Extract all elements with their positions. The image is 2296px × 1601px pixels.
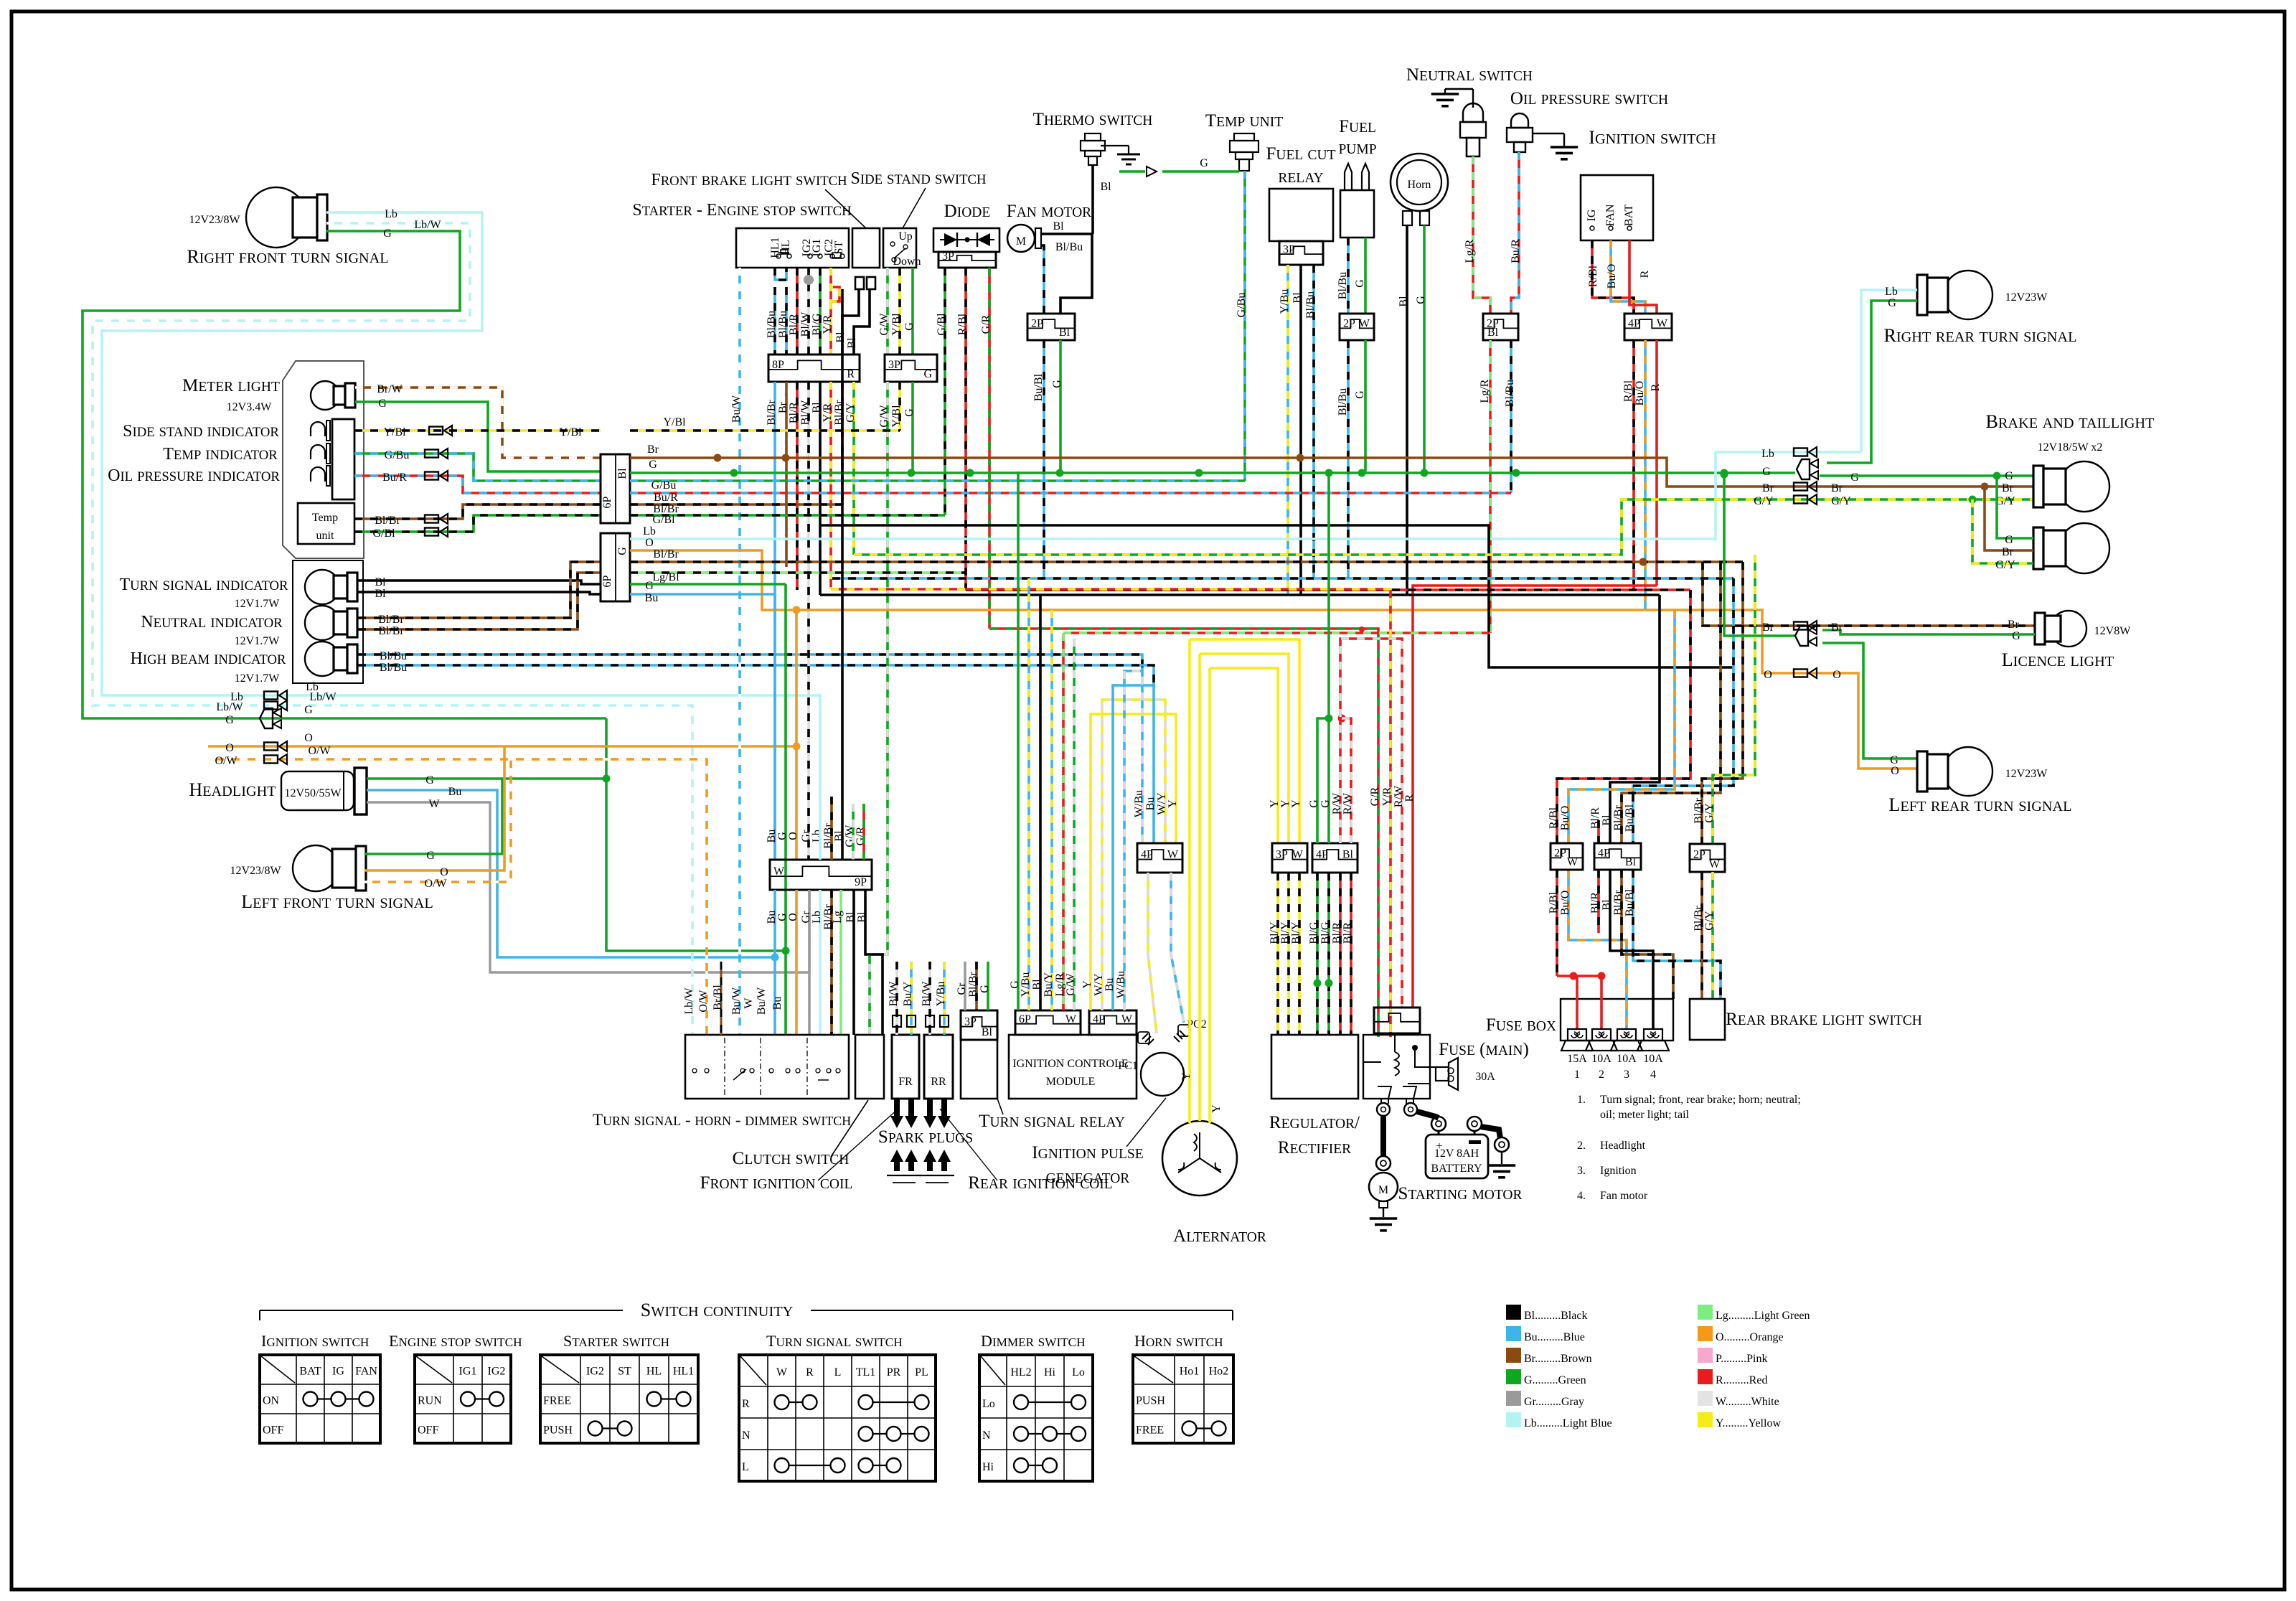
- svg-text:Temp: Temp: [312, 512, 338, 524]
- svg-text:12V8W: 12V8W: [2094, 625, 2132, 637]
- svg-text:3P: 3P: [942, 250, 954, 263]
- svg-text:PUSH: PUSH: [543, 1424, 573, 1437]
- svg-text:Lb/W: Lb/W: [683, 987, 695, 1014]
- svg-text:Down: Down: [893, 255, 921, 268]
- svg-text:Bu/O: Bu/O: [1559, 891, 1571, 916]
- svg-text:OIL PRESSURE SWITCH: OIL PRESSURE SWITCH: [1510, 89, 1668, 108]
- svg-text:2P: 2P: [1343, 318, 1355, 330]
- svg-text:M: M: [1016, 235, 1026, 248]
- svg-text:12V 8AH: 12V 8AH: [1434, 1147, 1479, 1160]
- svg-text:Bl: Bl: [1601, 814, 1613, 826]
- svg-text:1: 1: [1574, 1069, 1580, 1081]
- svg-text:Lg/Bl: Lg/Bl: [652, 571, 679, 583]
- svg-text:Bu/Bl: Bu/Bl: [1032, 373, 1045, 401]
- svg-text:Y/R: Y/R: [822, 314, 834, 334]
- svg-text:THERMO SWITCH: THERMO SWITCH: [1033, 110, 1153, 129]
- svg-text:SIDE STAND INDICATOR: SIDE STAND INDICATOR: [123, 422, 279, 441]
- svg-text:8P: 8P: [772, 359, 784, 371]
- svg-text:REGULATOR/: REGULATOR/: [1269, 1113, 1360, 1132]
- svg-text:METER LIGHT: METER LIGHT: [182, 376, 280, 395]
- svg-text:G: G: [1762, 466, 1771, 478]
- svg-text:W: W: [1121, 1013, 1133, 1025]
- svg-text:10A: 10A: [1617, 1053, 1637, 1065]
- svg-text:FUEL: FUEL: [1339, 117, 1376, 136]
- svg-text:12V1.7W: 12V1.7W: [235, 672, 281, 685]
- svg-text:IG2: IG2: [586, 1366, 604, 1378]
- svg-text:G: G: [1354, 390, 1366, 399]
- svg-text:IG1: IG1: [811, 239, 823, 257]
- svg-text:Bl/Br: Bl/Br: [1612, 805, 1624, 831]
- svg-text:Headlight: Headlight: [1600, 1140, 1646, 1152]
- svg-text:FUEL CUT: FUEL CUT: [1266, 144, 1335, 164]
- svg-text:RR: RR: [931, 1076, 946, 1088]
- svg-text:Bl/R: Bl/R: [788, 314, 800, 336]
- svg-text:IG: IG: [1586, 209, 1598, 221]
- svg-text:Br: Br: [1831, 482, 1843, 494]
- svg-text:Lg/R: Lg/R: [1464, 239, 1476, 263]
- svg-text:Y.........Yellow: Y.........Yellow: [1716, 1417, 1781, 1429]
- svg-text:Br: Br: [2008, 619, 2020, 631]
- svg-text:R: R: [742, 1398, 750, 1410]
- svg-text:R: R: [847, 368, 855, 380]
- svg-text:R/Bl: R/Bl: [1622, 380, 1634, 402]
- svg-text:HL: HL: [646, 1366, 662, 1378]
- svg-text:Y: Y: [1210, 1104, 1223, 1113]
- svg-text:W: W: [1657, 318, 1668, 330]
- svg-text:Y: Y: [1290, 799, 1302, 808]
- svg-text:Bl/Br: Bl/Br: [375, 515, 400, 527]
- svg-text:PR: PR: [887, 1366, 901, 1379]
- svg-text:SIDE STAND SWITCH: SIDE STAND SWITCH: [851, 169, 987, 188]
- svg-text:R: R: [1403, 794, 1416, 802]
- svg-text:IG2: IG2: [488, 1366, 506, 1378]
- svg-text:O/W: O/W: [215, 755, 237, 767]
- svg-text:Y/R: Y/R: [822, 403, 834, 422]
- svg-text:RECTIFIER: RECTIFIER: [1278, 1138, 1351, 1158]
- svg-text:G: G: [2005, 470, 2013, 482]
- svg-text:Br/Bl: Br/Bl: [712, 985, 724, 1010]
- svg-text:Br/W: Br/W: [377, 383, 403, 395]
- svg-text:P.........Pink: P.........Pink: [1716, 1353, 1767, 1365]
- svg-text:IG: IG: [332, 1366, 344, 1378]
- svg-text:Bl/Bu: Bl/Bu: [1337, 272, 1349, 299]
- svg-text:FRONT BRAKE LIGHT SWITCH: FRONT BRAKE LIGHT SWITCH: [651, 171, 847, 189]
- svg-text:G: G: [378, 398, 387, 410]
- svg-text:O.........Orange: O.........Orange: [1716, 1331, 1784, 1343]
- svg-text:Bl/R: Bl/R: [788, 402, 800, 424]
- svg-text:Br: Br: [2002, 482, 2014, 494]
- svg-text:ST: ST: [618, 1366, 631, 1378]
- svg-text:Y/Bl: Y/Bl: [890, 405, 903, 428]
- svg-text:Lb.........Light Blue: Lb.........Light Blue: [1524, 1417, 1612, 1429]
- svg-text:TURN SIGNAL - HORN - DIMMER SW: TURN SIGNAL - HORN - DIMMER SWITCH: [593, 1111, 851, 1129]
- svg-text:Bl: Bl: [1053, 220, 1064, 233]
- svg-text:Bl: Bl: [375, 576, 386, 588]
- svg-text:G/Y: G/Y: [1995, 495, 2015, 507]
- svg-text:SPARK PLUGS: SPARK PLUGS: [878, 1127, 973, 1147]
- svg-text:R.........Red: R.........Red: [1716, 1374, 1767, 1386]
- svg-text:Bu/Bl: Bu/Bl: [1624, 888, 1636, 916]
- svg-text:Lb: Lb: [643, 525, 656, 537]
- svg-text:TURN SIGNAL RELAY: TURN SIGNAL RELAY: [979, 1112, 1125, 1131]
- svg-text:Bl/Br: Bl/Br: [378, 625, 404, 637]
- svg-text:4P: 4P: [1316, 849, 1328, 861]
- svg-text:Bl: Bl: [1398, 296, 1410, 307]
- svg-text:G: G: [1319, 799, 1332, 808]
- svg-text:Bl/W: Bl/W: [799, 311, 811, 337]
- svg-text:W/Bu: W/Bu: [1133, 790, 1145, 817]
- svg-text:G: G: [1850, 471, 1859, 484]
- svg-text:N: N: [982, 1429, 991, 1442]
- svg-text:Bl: Bl: [1625, 856, 1637, 868]
- svg-text:Y/Bl: Y/Bl: [559, 426, 582, 438]
- svg-text:Up: Up: [898, 230, 913, 243]
- svg-text:Bu.........Blue: Bu.........Blue: [1524, 1331, 1585, 1343]
- svg-text:3P: 3P: [1276, 849, 1288, 861]
- svg-text:12V1.7W: 12V1.7W: [235, 635, 281, 647]
- svg-text:Bu/W: Bu/W: [730, 987, 743, 1015]
- svg-text:R: R: [1639, 270, 1651, 278]
- svg-text:2: 2: [1599, 1069, 1604, 1081]
- svg-text:L: L: [742, 1461, 749, 1473]
- svg-text:12V23/8W: 12V23/8W: [189, 214, 240, 226]
- svg-text:Bu: Bu: [448, 786, 462, 798]
- svg-text:12V23/8W: 12V23/8W: [230, 865, 281, 877]
- svg-text:Bl/Br: Bl/Br: [1612, 890, 1624, 916]
- svg-text:R/Bl: R/Bl: [1548, 891, 1560, 914]
- svg-text:oil; meter light; tail: oil; meter light; tail: [1600, 1109, 1690, 1121]
- svg-text:G: G: [1888, 297, 1896, 309]
- svg-text:W.........White: W.........White: [1716, 1396, 1779, 1408]
- svg-text:Bl/Br: Bl/Br: [967, 972, 979, 997]
- svg-text:3P: 3P: [1283, 244, 1295, 256]
- svg-text:MODULE: MODULE: [1046, 1076, 1095, 1088]
- svg-text:G: G: [425, 774, 434, 787]
- svg-text:O: O: [440, 866, 448, 878]
- svg-text:G/Bu: G/Bu: [385, 449, 410, 461]
- svg-text:HL1: HL1: [673, 1366, 694, 1378]
- svg-text:W: W: [1567, 856, 1578, 868]
- svg-text:FUSE BOX: FUSE BOX: [1486, 1015, 1556, 1035]
- svg-text:CLUTCH SWITCH: CLUTCH SWITCH: [733, 1149, 850, 1168]
- svg-text:Lg/R: Lg/R: [1479, 379, 1491, 403]
- svg-text:Bl/Bu: Bl/Bu: [380, 650, 407, 662]
- svg-text:Y/Bl: Y/Bl: [663, 416, 686, 428]
- svg-text:PUMP: PUMP: [1338, 142, 1376, 157]
- svg-text:O: O: [1891, 765, 1899, 777]
- svg-text:3P: 3P: [888, 359, 900, 371]
- svg-text:Bl/Br: Bl/Br: [653, 548, 679, 560]
- svg-text:G: G: [304, 704, 313, 716]
- svg-text:Bl: Bl: [834, 332, 847, 343]
- svg-text:O/W: O/W: [308, 745, 331, 757]
- svg-text:Lg.........Light Green: Lg.........Light Green: [1716, 1310, 1810, 1322]
- svg-text:G.........Green: G.........Green: [1524, 1374, 1586, 1386]
- svg-text:STARTER - ENGINE STOP SWITCH: STARTER - ENGINE STOP SWITCH: [632, 201, 851, 220]
- svg-text:Bl/Br: Bl/Br: [766, 400, 778, 426]
- svg-text:W: W: [428, 798, 440, 810]
- svg-text:G/Y: G/Y: [1831, 495, 1851, 507]
- svg-text:R/Bl: R/Bl: [956, 313, 969, 335]
- svg-text:RELAY: RELAY: [1278, 171, 1323, 186]
- svg-text:Ho1: Ho1: [1180, 1366, 1200, 1378]
- svg-text:Horn: Horn: [1408, 179, 1431, 191]
- svg-text:G/Y: G/Y: [1995, 559, 2015, 571]
- svg-text:Bu: Bu: [1144, 797, 1157, 811]
- svg-text:G/W: G/W: [878, 405, 890, 428]
- svg-text:G: G: [1308, 799, 1320, 808]
- svg-text:Lb: Lb: [811, 911, 823, 924]
- svg-text:FAN: FAN: [355, 1366, 377, 1378]
- svg-text:Bu/Bl: Bu/Bl: [1624, 804, 1636, 832]
- svg-text:PUSH: PUSH: [1136, 1395, 1165, 1407]
- svg-text:10A: 10A: [1591, 1053, 1612, 1065]
- svg-text:G: G: [1354, 279, 1366, 288]
- svg-text:R: R: [1650, 383, 1662, 391]
- svg-text:FREE: FREE: [543, 1395, 571, 1407]
- svg-text:12V3.4W: 12V3.4W: [227, 401, 273, 413]
- svg-text:G/Y: G/Y: [1703, 803, 1716, 823]
- svg-text:Bl/Y: Bl/Y: [1290, 921, 1302, 944]
- svg-text:Bu/R: Bu/R: [654, 492, 678, 504]
- svg-text:2.: 2.: [1577, 1140, 1586, 1152]
- svg-text:FAN MOTOR: FAN MOTOR: [1007, 202, 1091, 221]
- svg-text:2P: 2P: [1693, 849, 1705, 861]
- svg-text:W: W: [1065, 1013, 1077, 1025]
- svg-text:Y/Bl: Y/Bl: [890, 313, 903, 336]
- svg-text:Lg: Lg: [832, 911, 844, 924]
- svg-text:G/Y: G/Y: [1703, 911, 1716, 931]
- svg-text:Gr: Gr: [956, 982, 968, 995]
- svg-text:W: W: [743, 997, 755, 1009]
- svg-text:Bl: Bl: [1100, 181, 1111, 193]
- svg-text:G: G: [426, 850, 435, 862]
- svg-text:Hi: Hi: [982, 1461, 994, 1473]
- svg-text:Bl/G: Bl/G: [1319, 921, 1332, 944]
- svg-text:4.: 4.: [1577, 1190, 1586, 1202]
- svg-text:Bl: Bl: [616, 468, 629, 479]
- svg-text:Gr.........Gray: Gr.........Gray: [1524, 1396, 1584, 1408]
- svg-text:Bl/Bu: Bl/Bu: [1337, 388, 1349, 415]
- svg-text:Bl: Bl: [1031, 979, 1043, 990]
- svg-text:G/R: G/R: [1369, 787, 1381, 806]
- svg-text:Hi: Hi: [1044, 1366, 1056, 1379]
- svg-text:RUN: RUN: [418, 1395, 442, 1407]
- svg-text:Br: Br: [1762, 482, 1774, 494]
- svg-text:Y: Y: [1180, 1072, 1192, 1081]
- svg-text:Bl: Bl: [1291, 292, 1304, 304]
- svg-text:Bu: Bu: [645, 592, 659, 604]
- svg-text:O: O: [225, 742, 234, 754]
- svg-text:O/W: O/W: [697, 990, 710, 1013]
- svg-text:Bl: Bl: [1487, 327, 1499, 339]
- svg-text:G: G: [903, 322, 916, 331]
- svg-text:W: W: [1359, 318, 1370, 330]
- svg-text:Bl: Bl: [1342, 849, 1354, 861]
- svg-text:Br: Br: [1831, 621, 1843, 634]
- svg-text:W: W: [773, 865, 785, 878]
- svg-text:G: G: [383, 227, 392, 240]
- svg-text:W/Bu: W/Bu: [1115, 971, 1127, 998]
- svg-text:15A: 15A: [1567, 1053, 1587, 1065]
- svg-text:Bl/Bu: Bl/Bu: [1504, 380, 1516, 407]
- svg-text:Bl/Bu: Bl/Bu: [1055, 241, 1083, 253]
- svg-text:FR: FR: [898, 1076, 913, 1088]
- svg-text:OFF: OFF: [418, 1424, 438, 1437]
- svg-text:R/Bl: R/Bl: [1587, 265, 1599, 287]
- svg-text:G/Y: G/Y: [1754, 495, 1774, 507]
- svg-text:G/Bl: G/Bl: [372, 527, 395, 540]
- svg-text:4P: 4P: [1628, 318, 1640, 330]
- svg-text:G: G: [923, 368, 932, 380]
- svg-text:12V50/55W: 12V50/55W: [284, 787, 342, 799]
- svg-text:G: G: [645, 580, 654, 592]
- svg-text:Y/Bu: Y/Bu: [1020, 972, 1032, 997]
- svg-text:4P: 4P: [1598, 848, 1610, 860]
- svg-text:Lb: Lb: [1761, 448, 1774, 460]
- svg-text:6P: 6P: [1019, 1013, 1031, 1025]
- svg-text:Bu/O: Bu/O: [1634, 381, 1646, 406]
- svg-text:O: O: [1832, 669, 1841, 681]
- svg-text:DIODE: DIODE: [944, 202, 991, 221]
- svg-text:Y/Bu: Y/Bu: [935, 982, 947, 1007]
- svg-text:Bu/O: Bu/O: [1606, 264, 1618, 289]
- svg-text:HL2: HL2: [1010, 1366, 1031, 1379]
- svg-text:Br: Br: [647, 443, 659, 456]
- svg-text:Bl/W: Bl/W: [888, 981, 900, 1007]
- svg-text:TL1: TL1: [856, 1366, 876, 1379]
- svg-text:Turn signal; front, rear brake: Turn signal; front, rear brake; horn; ne…: [1600, 1094, 1801, 1106]
- svg-text:ON: ON: [263, 1395, 280, 1407]
- svg-text:PL: PL: [915, 1366, 928, 1379]
- svg-text:9P: 9P: [855, 876, 867, 888]
- svg-text:2P: 2P: [1554, 848, 1566, 860]
- svg-text:Lb/W: Lb/W: [216, 701, 243, 713]
- svg-text:GENEGATOR: GENEGATOR: [1046, 1171, 1130, 1186]
- svg-text:Bu/Y: Bu/Y: [902, 981, 914, 1006]
- svg-text:G/Bu: G/Bu: [651, 479, 677, 492]
- svg-text:O: O: [304, 732, 313, 744]
- svg-text:4: 4: [1650, 1069, 1656, 1081]
- svg-text:W: W: [1709, 858, 1721, 870]
- svg-text:OIL PRESSURE INDICATOR: OIL PRESSURE INDICATOR: [108, 466, 280, 485]
- svg-text:2P: 2P: [1031, 318, 1043, 330]
- svg-text:Bu/R: Bu/R: [382, 471, 407, 484]
- svg-text:G/Bl: G/Bl: [936, 313, 948, 336]
- svg-text:O: O: [645, 537, 654, 549]
- svg-text:PC1: PC1: [1118, 1060, 1138, 1072]
- svg-text:R/Bl: R/Bl: [1548, 807, 1560, 829]
- svg-text:G: G: [1051, 380, 1063, 388]
- svg-text:G: G: [1200, 157, 1208, 169]
- svg-text:IG1: IG1: [459, 1366, 477, 1378]
- svg-text:30A: 30A: [1475, 1071, 1495, 1083]
- svg-text:FREE: FREE: [1136, 1424, 1164, 1437]
- svg-text:Bl/G: Bl/G: [1308, 921, 1320, 944]
- svg-text:Bl/W: Bl/W: [799, 400, 811, 426]
- svg-text:Bu/R: Bu/R: [1510, 239, 1522, 263]
- svg-text:FRONT IGNITION COIL: FRONT IGNITION COIL: [700, 1173, 853, 1193]
- svg-text:Br: Br: [2002, 546, 2014, 558]
- svg-text:N: N: [742, 1429, 751, 1442]
- svg-text:10A: 10A: [1643, 1053, 1663, 1065]
- svg-text:Bu: Bu: [771, 997, 784, 1010]
- svg-text:G: G: [225, 714, 234, 726]
- svg-text:STARTING MOTOR: STARTING MOTOR: [1398, 1184, 1522, 1203]
- svg-text:unit: unit: [316, 530, 334, 542]
- svg-text:Bu/W: Bu/W: [756, 987, 768, 1015]
- svg-text:L: L: [834, 1366, 842, 1379]
- svg-text:Y/Bu: Y/Bu: [1279, 289, 1291, 314]
- svg-text:G: G: [903, 408, 916, 417]
- svg-text:Y: Y: [1081, 980, 1093, 989]
- svg-text:Bl: Bl: [846, 337, 858, 349]
- svg-text:3P: 3P: [964, 1016, 977, 1028]
- svg-text:TURN SIGNAL INDICATOR: TURN SIGNAL INDICATOR: [119, 576, 288, 594]
- svg-text:TEMP UNIT: TEMP UNIT: [1205, 111, 1283, 131]
- svg-text:4P: 4P: [1093, 1013, 1105, 1025]
- svg-text:W: W: [1292, 849, 1304, 861]
- svg-text:6P: 6P: [601, 496, 613, 508]
- svg-text:O/W: O/W: [424, 878, 447, 890]
- svg-text:G/W: G/W: [1065, 973, 1077, 996]
- svg-text:Bl.........Black: Bl.........Black: [1524, 1310, 1587, 1322]
- svg-text:12V18/5W x2: 12V18/5W x2: [2038, 441, 2103, 454]
- svg-text:Bl: Bl: [856, 911, 868, 923]
- svg-text:G: G: [616, 547, 629, 555]
- svg-text:Bl/R: Bl/R: [1342, 922, 1354, 944]
- svg-text:Bl: Bl: [1601, 899, 1613, 911]
- svg-text:FAN: FAN: [1604, 204, 1617, 226]
- svg-text:O: O: [787, 913, 799, 921]
- svg-text:G/Bl: G/Bl: [652, 514, 675, 526]
- svg-text:G: G: [1415, 296, 1427, 304]
- svg-text:R: R: [806, 1366, 814, 1379]
- svg-text:NEUTRAL INDICATOR: NEUTRAL INDICATOR: [141, 613, 283, 632]
- svg-text:Bl/Bu: Bl/Bu: [1304, 291, 1317, 319]
- svg-text:3: 3: [1624, 1069, 1629, 1081]
- svg-text:12V23W: 12V23W: [2005, 768, 2048, 780]
- svg-text:12V1.7W: 12V1.7W: [235, 598, 281, 610]
- svg-text:Bl: Bl: [375, 588, 386, 600]
- svg-text:Bl: Bl: [844, 911, 857, 923]
- svg-text:W: W: [776, 1366, 788, 1379]
- svg-text:Y/Bl: Y/Bl: [383, 426, 406, 438]
- svg-text:G/W: G/W: [878, 313, 890, 336]
- svg-text:G: G: [2012, 630, 2020, 642]
- svg-text:Lo: Lo: [982, 1398, 995, 1410]
- svg-text:3.: 3.: [1577, 1165, 1586, 1177]
- svg-text:Lb/W: Lb/W: [309, 691, 337, 703]
- svg-text:BAT: BAT: [299, 1366, 321, 1378]
- svg-text:Lb: Lb: [1885, 286, 1898, 298]
- svg-text:Ho2: Ho2: [1209, 1366, 1229, 1378]
- svg-text:NEUTRAL SWITCH: NEUTRAL SWITCH: [1406, 65, 1533, 85]
- svg-text:M: M: [1378, 1184, 1388, 1196]
- svg-text:Br.........Brown: Br.........Brown: [1524, 1353, 1592, 1365]
- svg-text:BAT: BAT: [1623, 205, 1635, 226]
- svg-text:Bu/O: Bu/O: [1559, 806, 1571, 831]
- svg-text:G: G: [2005, 534, 2013, 546]
- svg-text:G/Bu: G/Bu: [1236, 293, 1248, 318]
- svg-text:O: O: [787, 832, 799, 840]
- svg-text:G/R: G/R: [980, 314, 992, 334]
- svg-text:Bl/Bu: Bl/Bu: [380, 662, 407, 674]
- svg-text:BATTERY: BATTERY: [1431, 1163, 1482, 1175]
- svg-text:HIGH BEAM INDICATOR: HIGH BEAM INDICATOR: [131, 649, 286, 668]
- svg-text:Br: Br: [1762, 621, 1774, 634]
- svg-text:Bu/W: Bu/W: [730, 395, 743, 423]
